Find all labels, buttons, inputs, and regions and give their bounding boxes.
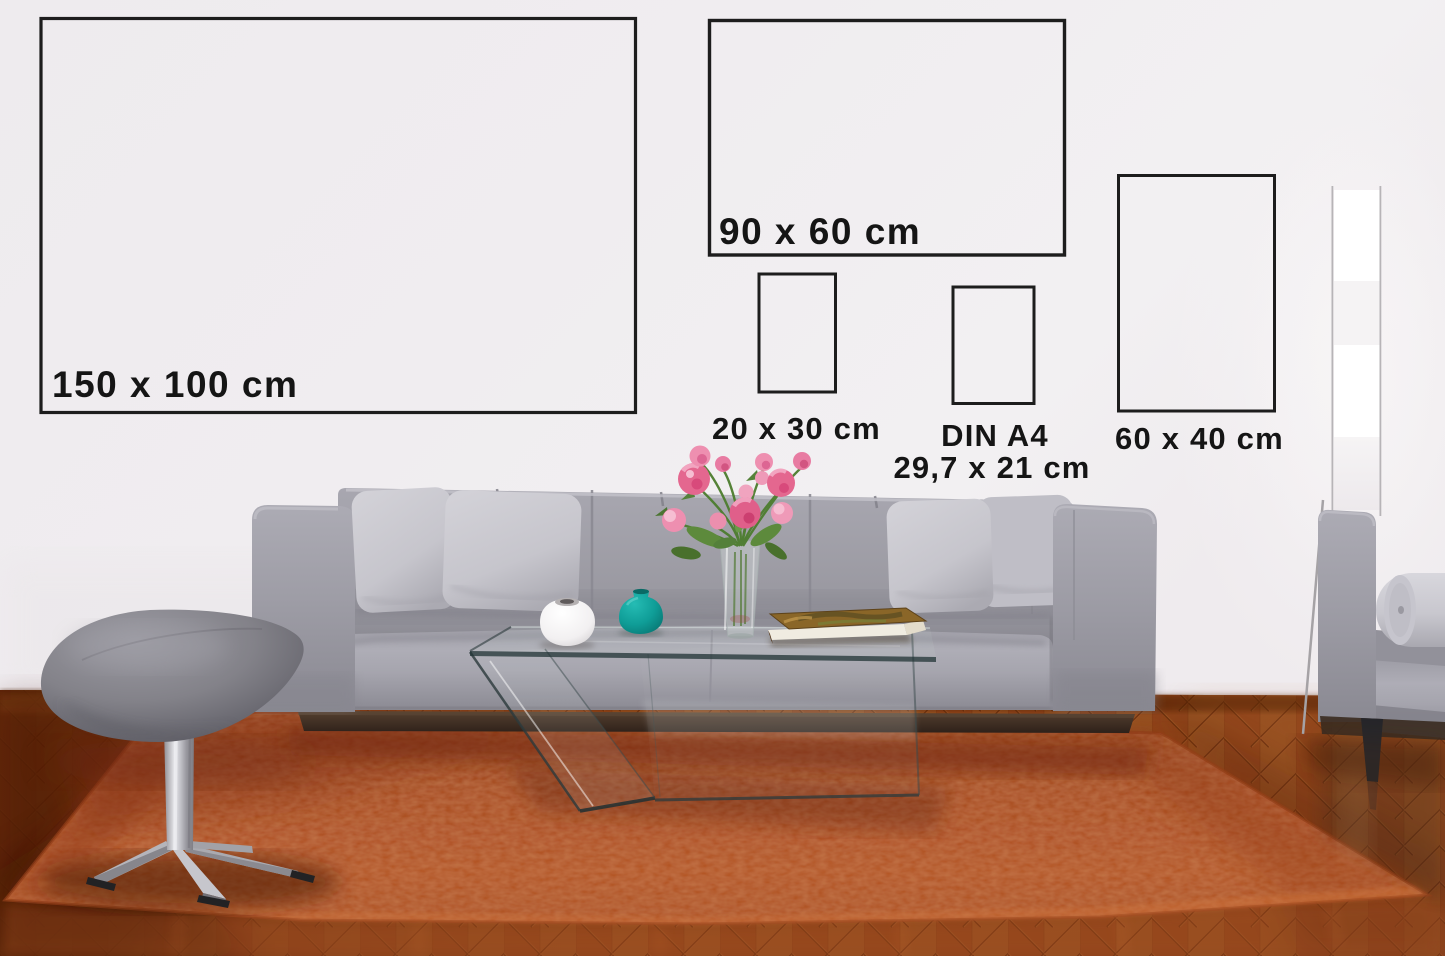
- svg-text:60 x 40 cm: 60 x 40 cm: [1115, 421, 1284, 456]
- svg-text:90 x 60 cm: 90 x 60 cm: [719, 211, 921, 252]
- svg-text:DIN A4: DIN A4: [941, 418, 1049, 453]
- svg-text:29,7 x 21 cm: 29,7 x 21 cm: [893, 450, 1090, 485]
- svg-text:20 x 30 cm: 20 x 30 cm: [712, 411, 881, 446]
- svg-text:150 x 100 cm: 150 x 100 cm: [52, 364, 298, 405]
